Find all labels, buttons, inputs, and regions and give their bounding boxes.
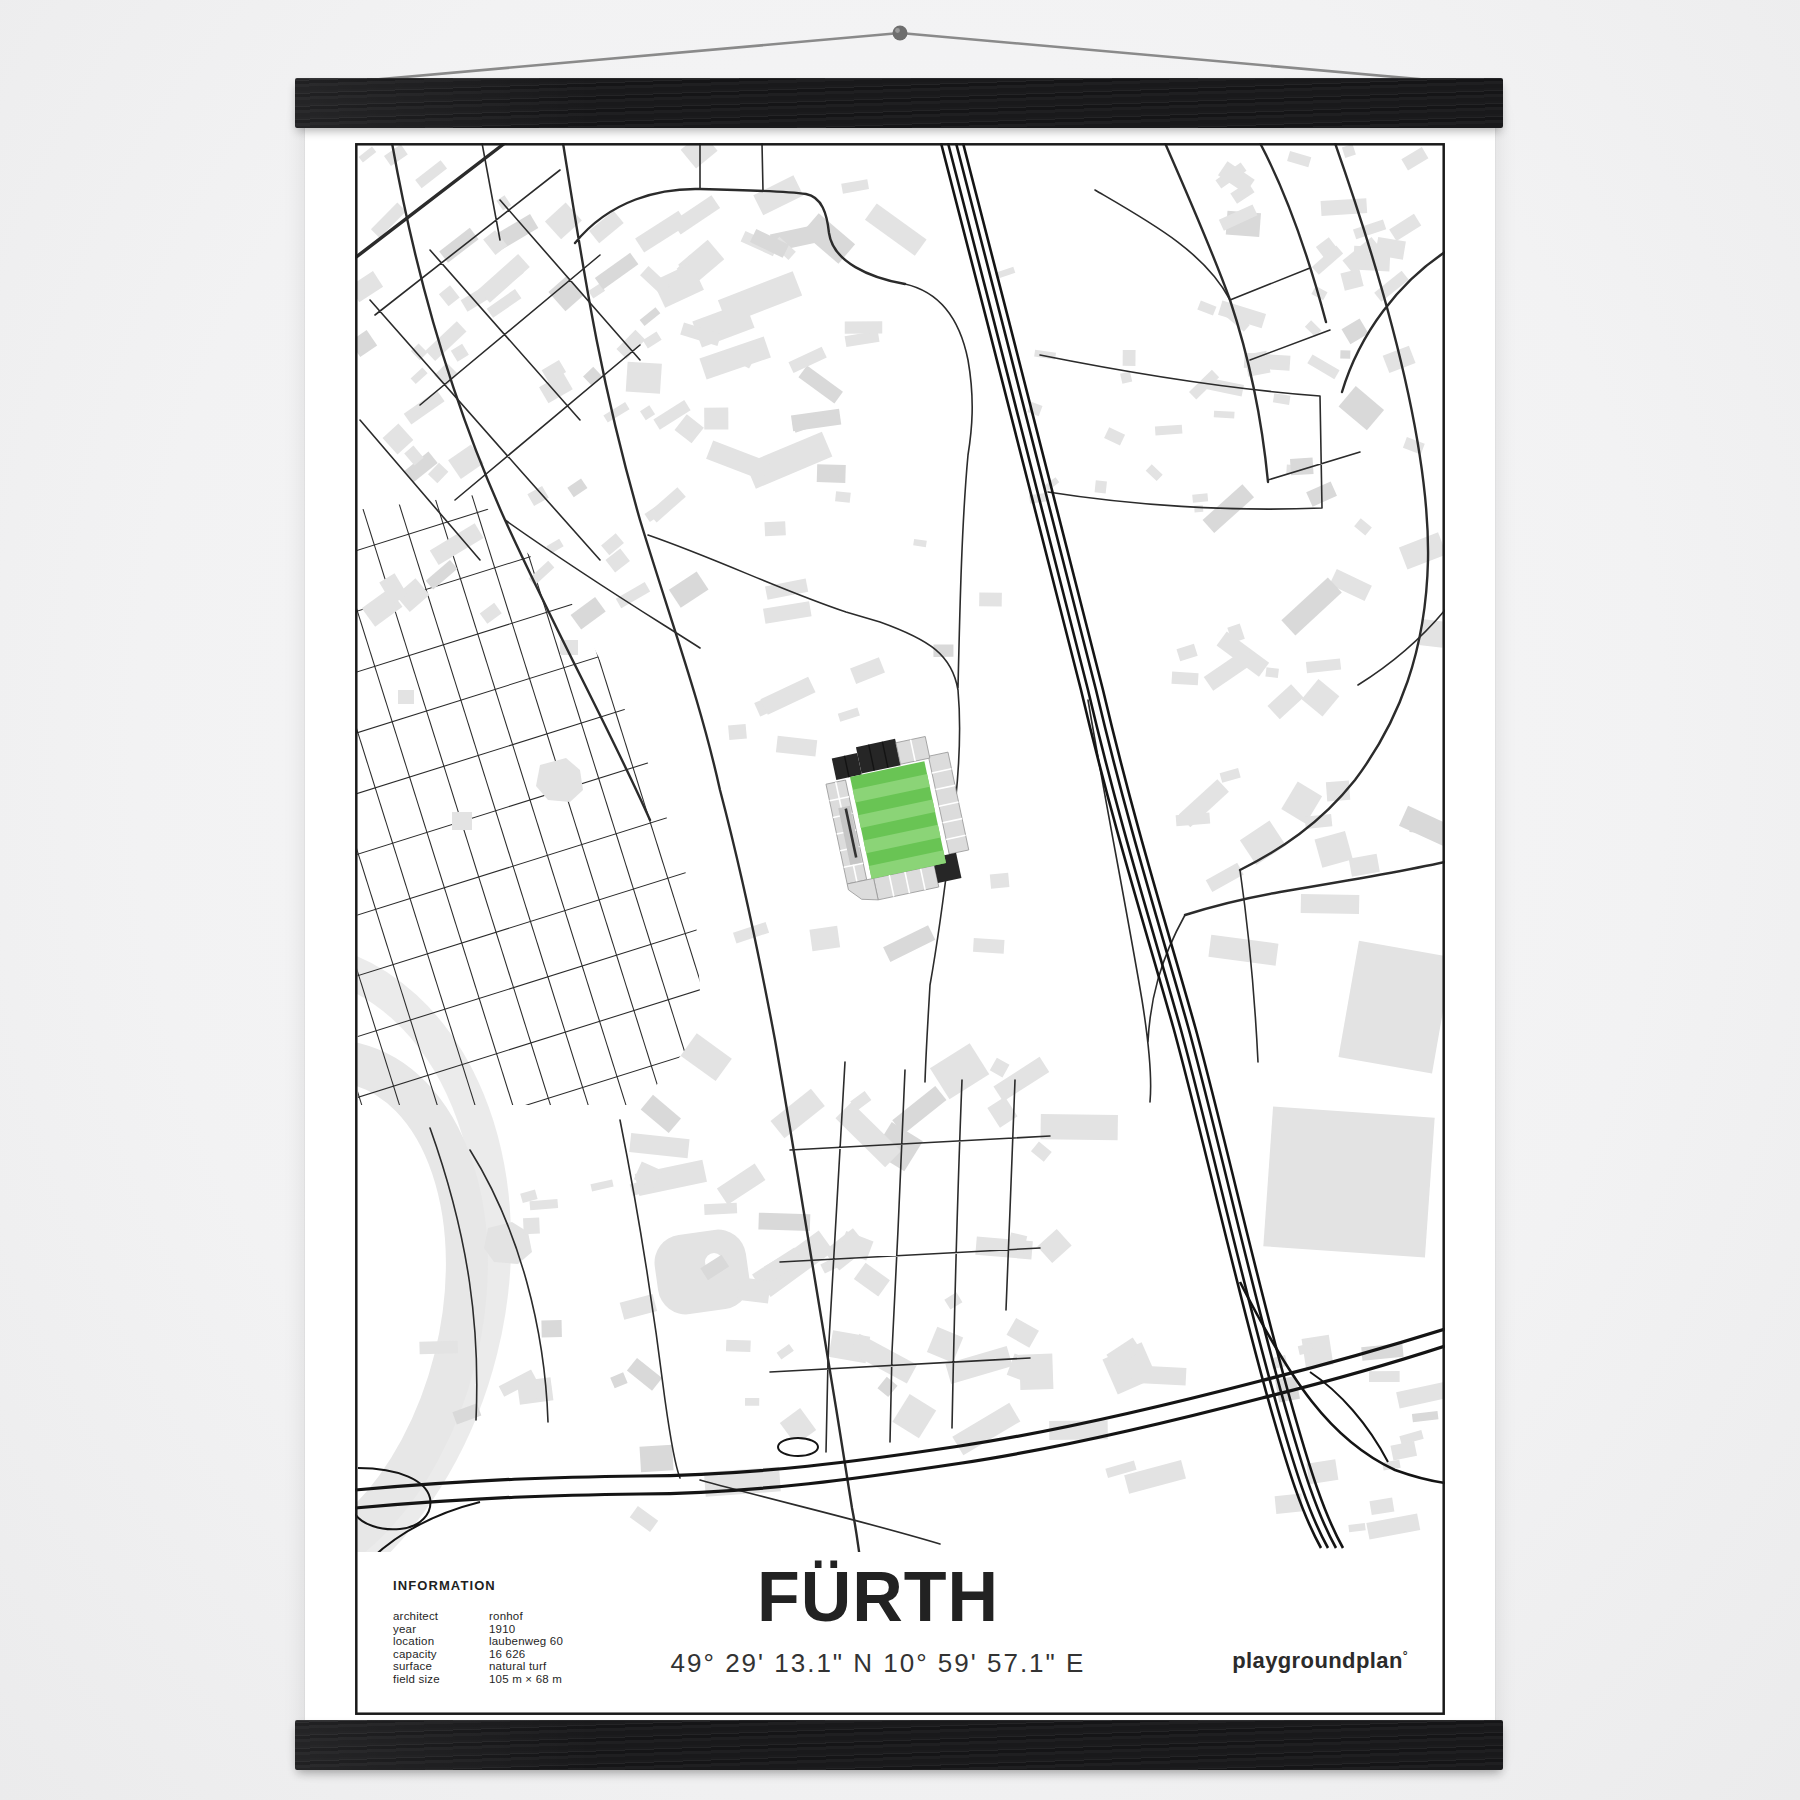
building <box>704 1203 737 1215</box>
building <box>1244 353 1291 371</box>
building <box>973 938 1005 954</box>
building <box>1340 350 1350 359</box>
building <box>1041 1114 1118 1140</box>
building <box>845 321 883 333</box>
building <box>1123 350 1136 366</box>
poster-title: FÜRTH <box>283 1562 1473 1632</box>
brand-name: playgroundplan <box>1232 1648 1403 1673</box>
building <box>1095 480 1107 493</box>
wire-hook <box>893 26 908 41</box>
building <box>728 724 747 740</box>
building <box>809 926 840 951</box>
building <box>523 1218 540 1235</box>
building <box>640 1445 674 1472</box>
building <box>1214 411 1235 419</box>
building <box>1265 667 1279 678</box>
building <box>745 1398 759 1406</box>
building <box>1369 1371 1400 1382</box>
building <box>835 491 851 503</box>
building <box>541 1320 562 1337</box>
industrial-building <box>1263 1107 1434 1258</box>
building <box>979 593 1002 607</box>
brand-logo: playgroundplan° <box>1232 1648 1408 1674</box>
building <box>1301 894 1360 914</box>
building <box>726 1340 751 1352</box>
brand-mark: ° <box>1403 1649 1408 1663</box>
building <box>626 362 662 394</box>
stadium-map <box>355 143 1445 1715</box>
building <box>1194 505 1203 512</box>
bottom-wooden-rail <box>295 1720 1503 1770</box>
building <box>419 1341 458 1354</box>
product-scene: INFORMATION architectronhofyear1910locat… <box>0 0 1800 1800</box>
building <box>1192 493 1208 502</box>
building <box>737 1277 771 1303</box>
building <box>758 1213 810 1231</box>
wire-hook-highlight <box>895 28 900 33</box>
building <box>704 408 728 430</box>
top-wooden-rail <box>295 78 1503 128</box>
poster-paper: INFORMATION architectronhofyear1910locat… <box>305 100 1495 1756</box>
building <box>990 873 1010 889</box>
building <box>1132 1365 1187 1385</box>
highway-island <box>778 1438 818 1456</box>
building <box>1171 672 1198 686</box>
building <box>764 521 785 536</box>
building <box>1321 198 1368 216</box>
